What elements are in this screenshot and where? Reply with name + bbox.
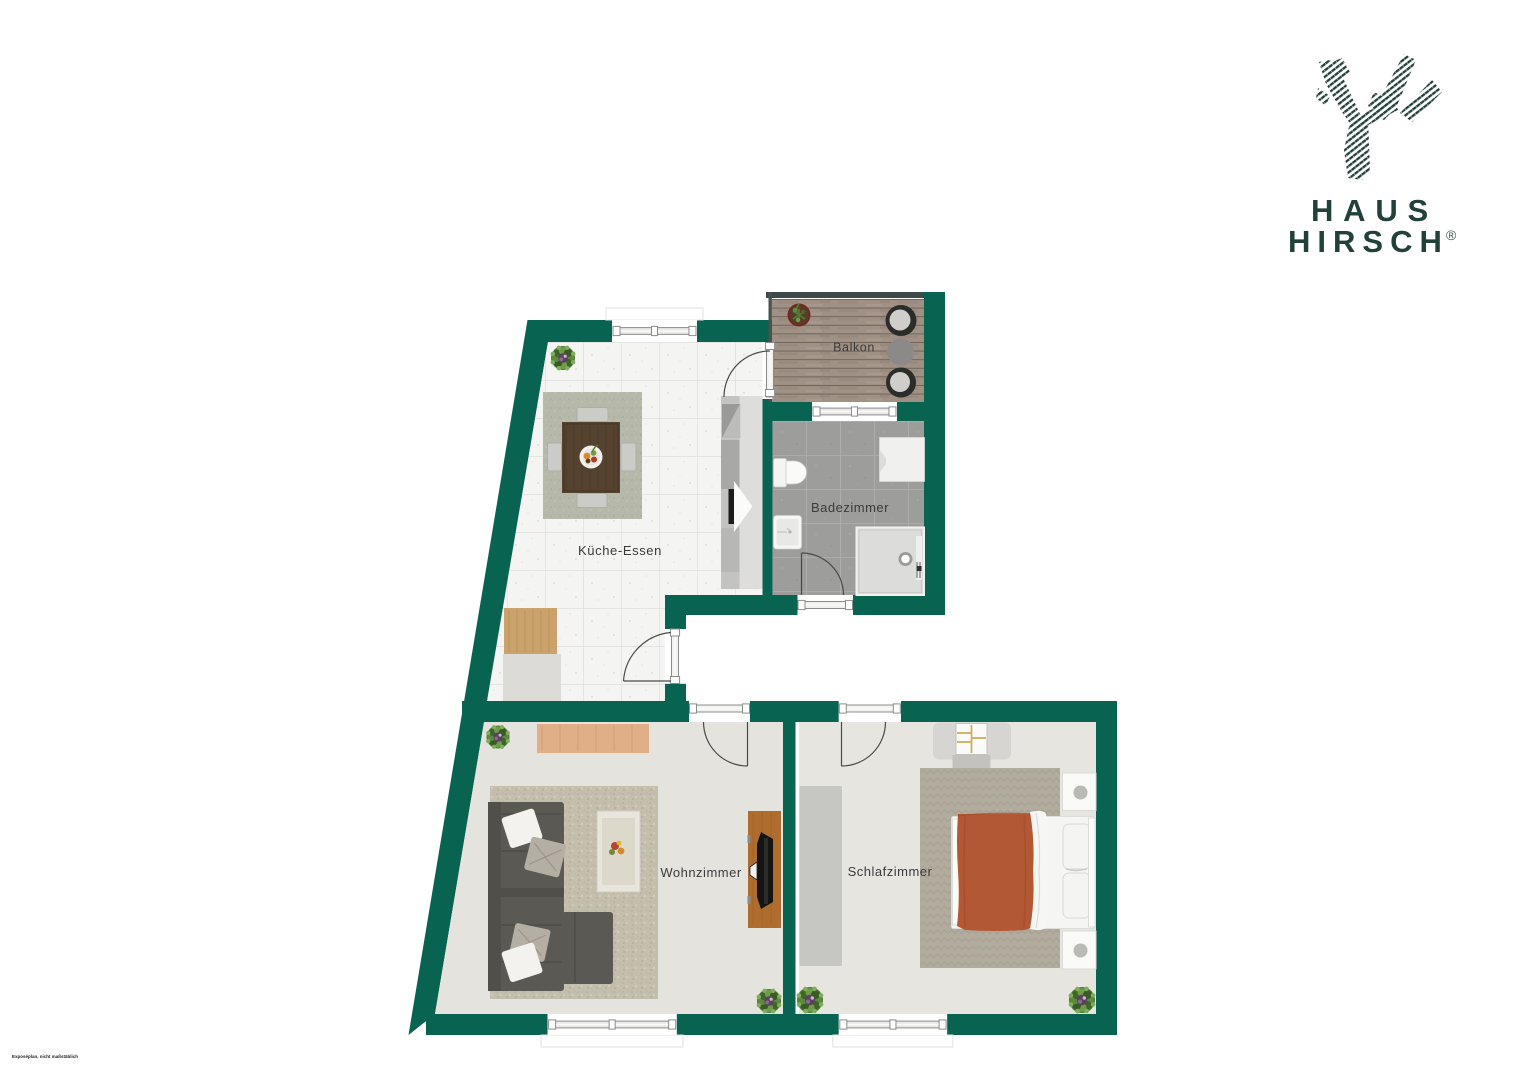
svg-text:Balkon: Balkon (833, 341, 875, 355)
svg-text:®: ® (1446, 227, 1457, 243)
svg-text:Exposéplan, nicht maßstäblich: Exposéplan, nicht maßstäblich (12, 1054, 78, 1059)
svg-text:Küche-Essen: Küche-Essen (578, 543, 662, 558)
svg-text:Badezimmer: Badezimmer (811, 500, 889, 515)
svg-text:HIRSCH: HIRSCH (1288, 224, 1449, 259)
svg-text:HAUS: HAUS (1311, 193, 1438, 228)
svg-text:Schlafzimmer: Schlafzimmer (848, 864, 933, 879)
svg-text:Wohnzimmer: Wohnzimmer (660, 865, 742, 880)
